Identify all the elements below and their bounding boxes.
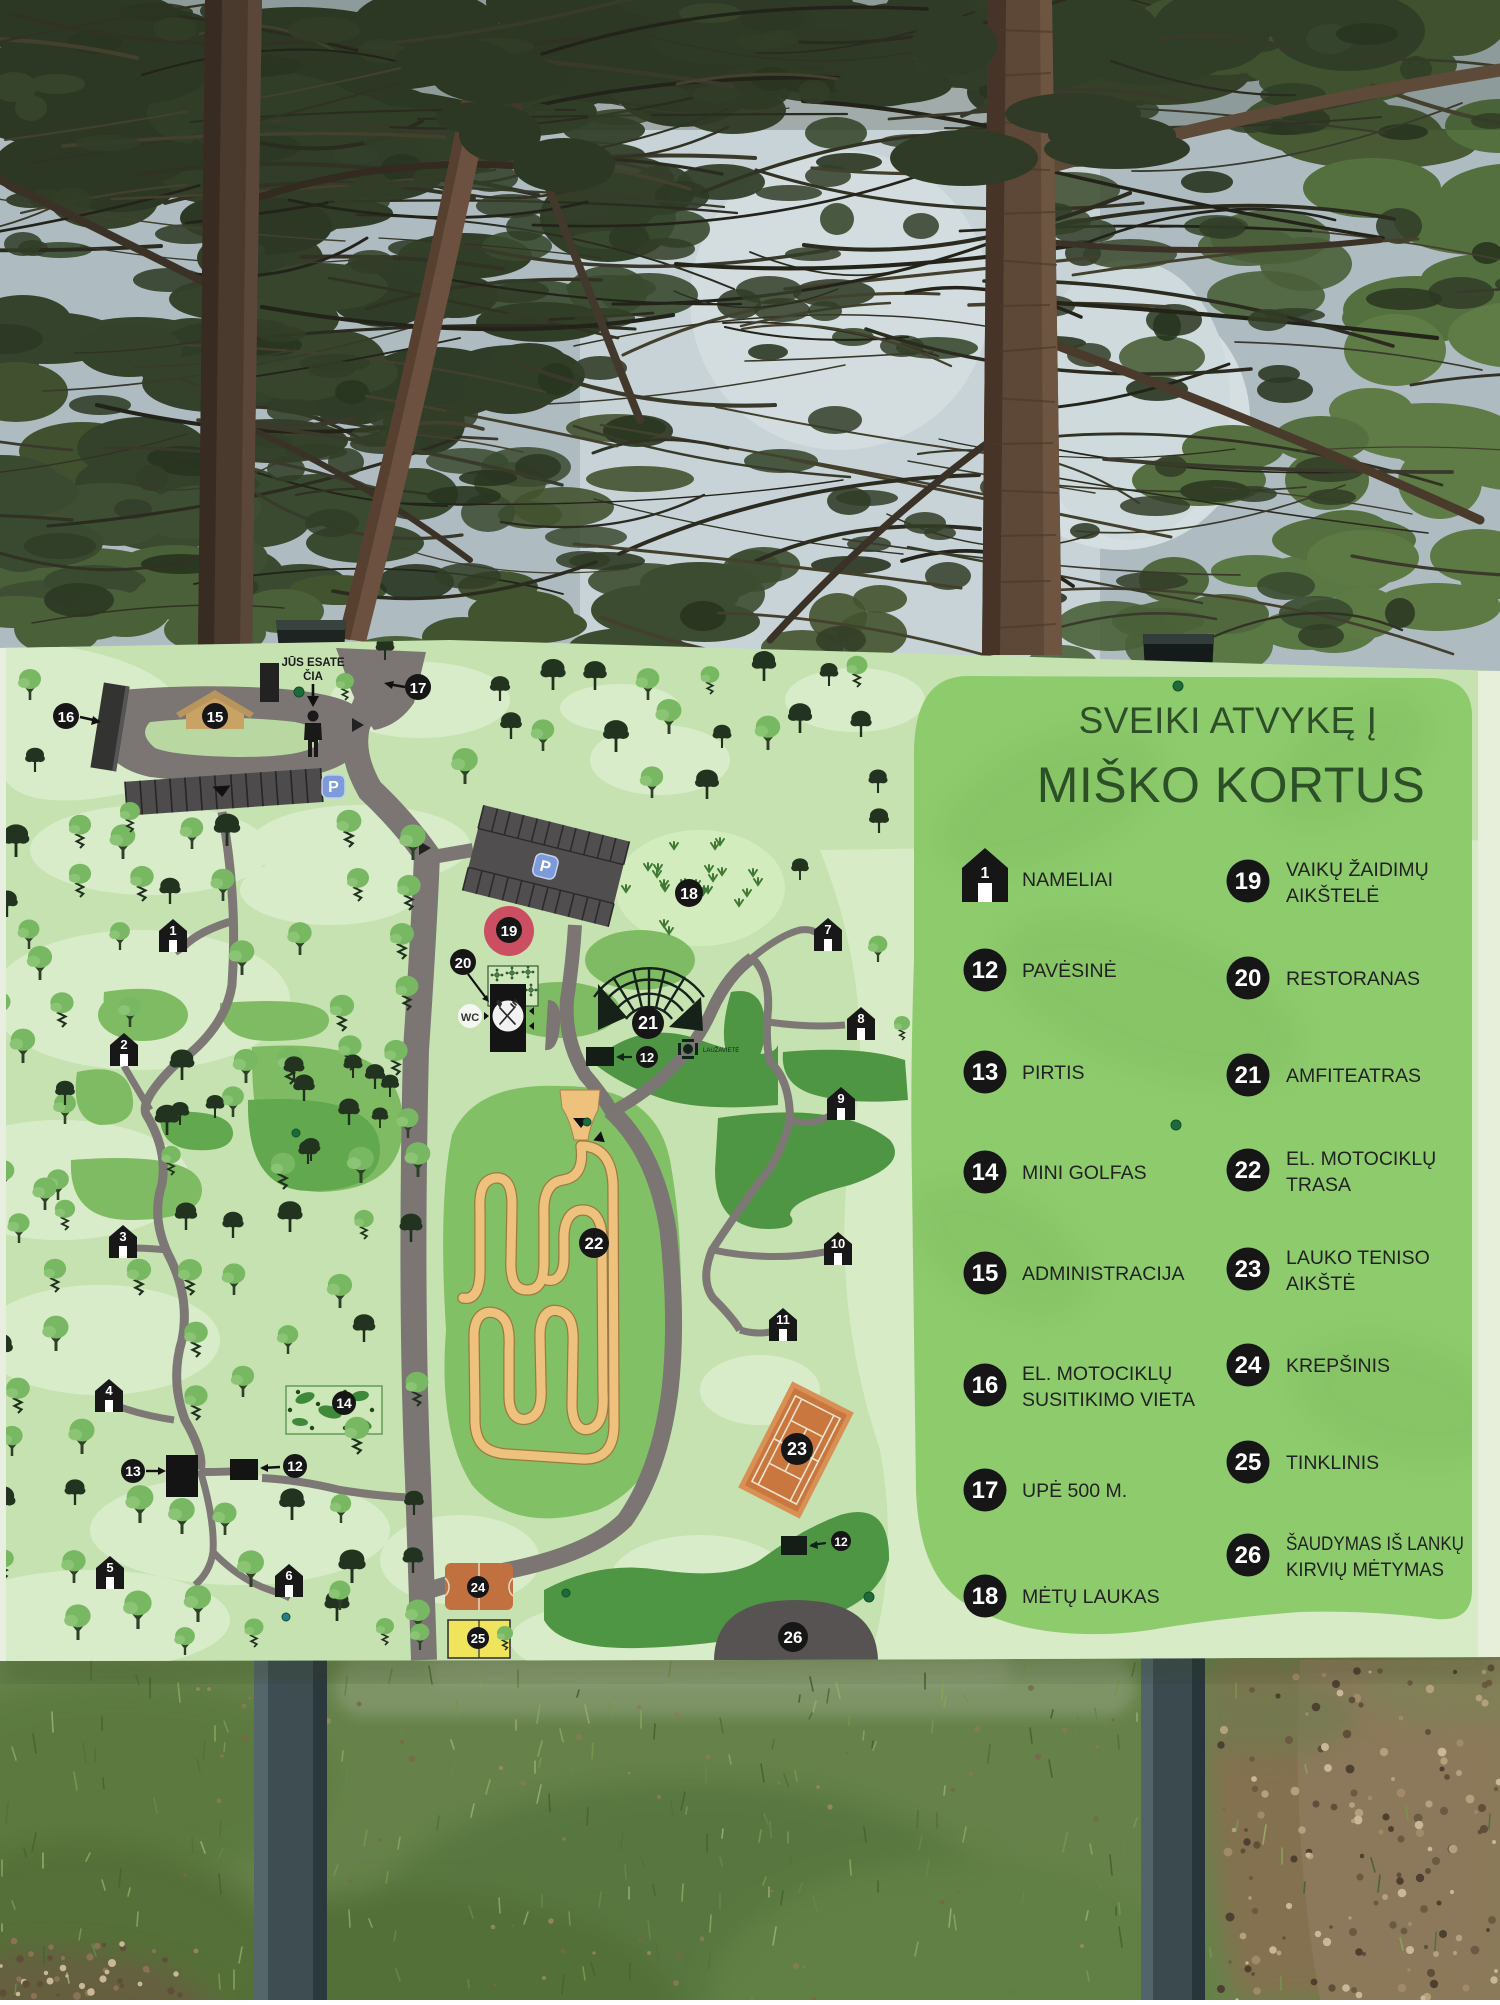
svg-text:22: 22 [1235, 1157, 1262, 1184]
svg-text:21: 21 [638, 1013, 658, 1033]
svg-text:KREPŠINIS: KREPŠINIS [1286, 1354, 1390, 1377]
svg-text:20: 20 [1235, 965, 1262, 992]
svg-text:WC: WC [461, 1012, 479, 1024]
svg-text:3: 3 [119, 1229, 126, 1244]
svg-text:26: 26 [1235, 1542, 1262, 1569]
svg-text:26: 26 [784, 1628, 803, 1647]
svg-text:4: 4 [105, 1383, 113, 1398]
svg-text:ŠAUDYMAS IŠ LANKŲ: ŠAUDYMAS IŠ LANKŲ [1286, 1532, 1464, 1555]
svg-text:16: 16 [972, 1372, 999, 1399]
svg-text:SVEIKI ATVYKĘ Į: SVEIKI ATVYKĘ Į [1079, 700, 1378, 741]
svg-text:TINKLINIS: TINKLINIS [1286, 1452, 1379, 1474]
svg-text:25: 25 [471, 1631, 485, 1646]
svg-text:1: 1 [169, 923, 176, 938]
svg-text:PIRTIS: PIRTIS [1022, 1062, 1085, 1084]
svg-text:16: 16 [58, 709, 75, 726]
svg-text:ADMINISTRACIJA: ADMINISTRACIJA [1022, 1263, 1185, 1285]
svg-text:MINI GOLFAS: MINI GOLFAS [1022, 1162, 1147, 1184]
svg-text:19: 19 [1235, 868, 1262, 895]
svg-text:AMFITEATRAS: AMFITEATRAS [1286, 1065, 1421, 1087]
svg-text:LAUKO TENISO: LAUKO TENISO [1286, 1247, 1430, 1269]
svg-text:EL. MOTOCIKLŲ: EL. MOTOCIKLŲ [1022, 1363, 1172, 1385]
svg-text:23: 23 [1235, 1256, 1262, 1283]
svg-text:KIRVIŲ MĖTYMAS: KIRVIŲ MĖTYMAS [1286, 1558, 1444, 1581]
svg-text:JŪS ESATE: JŪS ESATE [281, 657, 344, 669]
svg-text:12: 12 [640, 1050, 654, 1065]
svg-text:12: 12 [972, 957, 999, 984]
svg-text:10: 10 [831, 1236, 845, 1251]
svg-text:RESTORANAS: RESTORANAS [1286, 968, 1420, 990]
svg-text:22: 22 [585, 1234, 604, 1253]
svg-text:24: 24 [471, 1580, 486, 1595]
svg-text:13: 13 [125, 1463, 141, 1479]
svg-text:7: 7 [824, 922, 831, 937]
svg-text:AIKŠTELĖ: AIKŠTELĖ [1286, 884, 1379, 907]
svg-text:SUSITIKIMO VIETA: SUSITIKIMO VIETA [1022, 1389, 1195, 1411]
svg-text:17: 17 [972, 1477, 999, 1504]
svg-text:15: 15 [972, 1260, 999, 1287]
svg-text:VAIKŲ ŽAIDIMŲ: VAIKŲ ŽAIDIMŲ [1286, 858, 1429, 881]
svg-text:8: 8 [857, 1011, 864, 1026]
svg-text:5: 5 [106, 1560, 113, 1575]
svg-text:18: 18 [680, 886, 698, 903]
svg-text:PAVĖSINĖ: PAVĖSINĖ [1022, 959, 1117, 982]
svg-text:LAUŽAVIETĖ: LAUŽAVIETĖ [703, 1046, 739, 1054]
svg-text:MĖTŲ LAUKAS: MĖTŲ LAUKAS [1022, 1585, 1160, 1608]
svg-text:25: 25 [1235, 1449, 1262, 1476]
svg-text:17: 17 [410, 680, 427, 697]
svg-text:12: 12 [287, 1458, 303, 1474]
svg-text:15: 15 [207, 709, 224, 726]
svg-text:21: 21 [1235, 1062, 1262, 1089]
svg-text:23: 23 [787, 1439, 807, 1459]
svg-text:11: 11 [776, 1312, 790, 1327]
svg-text:2: 2 [120, 1037, 127, 1052]
svg-text:19: 19 [501, 923, 518, 940]
svg-text:1: 1 [981, 865, 990, 882]
svg-text:12: 12 [834, 1535, 848, 1549]
svg-text:MIŠKO KORTUS: MIŠKO KORTUS [1037, 757, 1425, 813]
svg-text:AIKŠTĖ: AIKŠTĖ [1286, 1272, 1355, 1295]
svg-text:EL. MOTOCIKLŲ: EL. MOTOCIKLŲ [1286, 1148, 1436, 1170]
svg-text:14: 14 [972, 1159, 999, 1186]
svg-text:13: 13 [972, 1059, 999, 1086]
svg-text:9: 9 [837, 1091, 844, 1106]
svg-text:18: 18 [972, 1583, 999, 1610]
svg-text:20: 20 [455, 955, 472, 972]
svg-text:ČIA: ČIA [303, 670, 323, 683]
svg-text:TRASA: TRASA [1286, 1174, 1351, 1196]
svg-text:NAMELIAI: NAMELIAI [1022, 869, 1113, 891]
svg-text:14: 14 [336, 1395, 352, 1411]
svg-text:P: P [328, 779, 339, 796]
svg-text:24: 24 [1235, 1352, 1262, 1379]
svg-text:UPĖ 500 M.: UPĖ 500 M. [1022, 1479, 1127, 1502]
svg-text:6: 6 [285, 1568, 292, 1583]
